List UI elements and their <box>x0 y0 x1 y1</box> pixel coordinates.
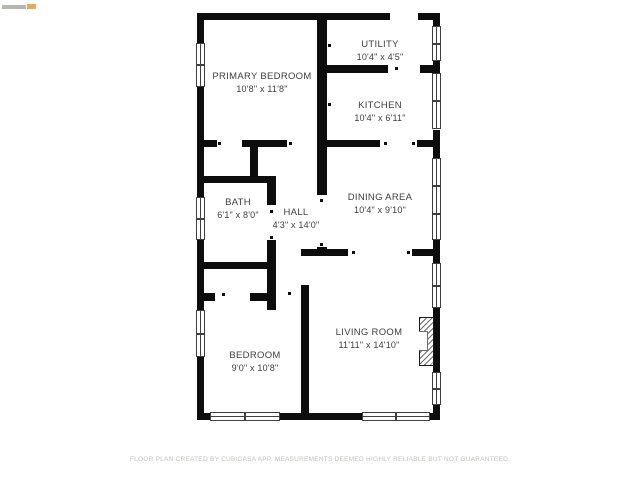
tick-dot <box>352 251 355 254</box>
room-name: LIVING ROOM <box>317 327 421 339</box>
window <box>432 263 441 286</box>
window <box>196 43 205 65</box>
wall-segment <box>280 413 362 420</box>
tick-dot <box>407 251 410 254</box>
wall-segment <box>433 308 440 372</box>
window <box>432 389 441 405</box>
tick-dot <box>218 142 221 145</box>
window <box>432 214 441 240</box>
window <box>432 26 441 44</box>
window <box>196 219 205 240</box>
room-label-hall: HALL 4'3" x 14'0" <box>258 207 334 231</box>
room-name: PRIMARY BEDROOM <box>182 71 342 83</box>
tick-dot <box>237 262 240 265</box>
window <box>196 334 205 357</box>
room-label-utility: UTILITY 10'4" x 4'5" <box>330 39 430 63</box>
window <box>362 412 396 421</box>
tick-dot <box>320 199 323 202</box>
wall-segment <box>430 413 440 420</box>
wall-segment <box>420 65 433 73</box>
wall-segment <box>197 357 204 420</box>
room-name: DINING AREA <box>330 192 430 204</box>
footer-disclaimer: FLOOR PLAN CREATED BY CUBICASA APP. MEAS… <box>0 456 640 463</box>
wall-segment <box>417 140 433 147</box>
tick-dot <box>288 292 291 295</box>
tick-dot <box>395 67 398 70</box>
room-dims: 9'0" x 10'8" <box>207 362 303 374</box>
window <box>196 310 205 334</box>
wall-segment <box>242 140 287 147</box>
tick-dot <box>222 293 225 296</box>
wall-segment <box>433 61 440 73</box>
window <box>210 412 245 421</box>
tick-dot <box>260 15 263 18</box>
floor-plan: PRIMARY BEDROOM 10'8" x 11'8" UTILITY 10… <box>0 0 640 480</box>
room-label-kitchen: KITCHEN 10'4" x 6'11" <box>330 100 430 124</box>
room-label-primary-bedroom: PRIMARY BEDROOM 10'8" x 11'8" <box>182 71 342 95</box>
room-dims: 10'8" x 11'8" <box>182 83 342 95</box>
window <box>432 286 441 308</box>
room-dims: 10'4" x 9'10" <box>330 204 430 216</box>
tick-dot <box>412 142 415 145</box>
window <box>245 412 280 421</box>
tick-dot <box>320 243 323 246</box>
room-dims: 4'3" x 14'0" <box>258 219 334 231</box>
room-label-dining-area: DINING AREA 10'4" x 9'10" <box>330 192 430 216</box>
tick-dot <box>384 142 387 145</box>
room-name: BEDROOM <box>207 350 303 362</box>
wall-segment <box>197 176 270 183</box>
wall-segment <box>301 249 348 256</box>
window <box>396 412 430 421</box>
room-label-living-room: LIVING ROOM 11'11" x 14'10" <box>317 327 421 351</box>
window <box>432 101 441 129</box>
room-name: UTILITY <box>330 39 430 51</box>
window <box>432 44 441 61</box>
tick-dot <box>289 142 292 145</box>
floor-plan-canvas: PRIMARY BEDROOM 10'8" x 11'8" UTILITY 10… <box>0 0 640 480</box>
window <box>432 186 441 214</box>
wall-segment <box>197 140 217 147</box>
room-label-bedroom: BEDROOM 9'0" x 10'8" <box>207 350 303 374</box>
window <box>432 73 441 101</box>
room-dims: 11'11" x 14'10" <box>317 339 421 351</box>
wall-segment <box>433 130 440 158</box>
wall-segment <box>317 140 380 147</box>
wall-segment <box>412 249 433 256</box>
wall-segment <box>197 13 204 43</box>
room-dims: 10'4" x 6'11" <box>330 112 430 124</box>
window <box>432 158 441 186</box>
room-name: KITCHEN <box>330 100 430 112</box>
tick-dot <box>254 296 257 299</box>
window <box>432 372 441 389</box>
wall-segment <box>433 240 440 263</box>
tick-dot <box>377 17 380 20</box>
tick-dot <box>377 67 380 70</box>
tick-dot <box>270 236 273 239</box>
room-dims: 10'4" x 4'5" <box>330 51 430 63</box>
wall-segment <box>197 413 210 420</box>
wall-segment <box>317 20 327 195</box>
wall-segment <box>197 293 215 301</box>
wall-segment <box>197 13 390 20</box>
room-name: HALL <box>258 207 334 219</box>
